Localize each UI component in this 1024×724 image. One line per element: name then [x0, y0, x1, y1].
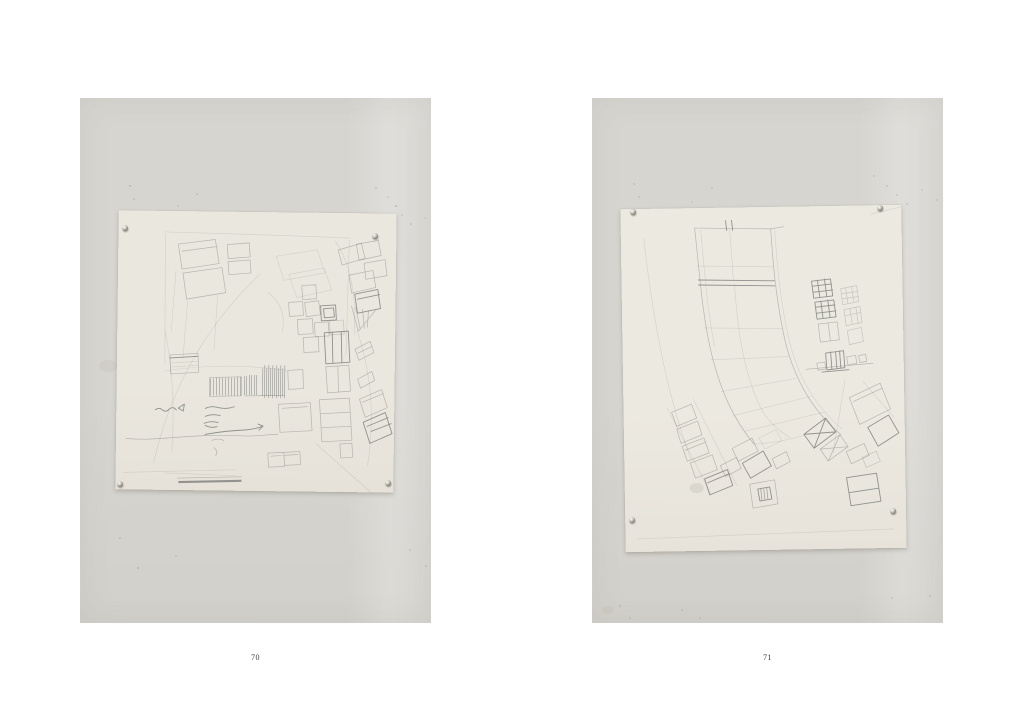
photo-plate-left [80, 98, 431, 623]
pushpin-icon [122, 225, 128, 231]
pushpin-icon [372, 233, 378, 239]
pushpin-icon [890, 508, 896, 514]
pushpin-icon [630, 209, 636, 215]
book-spread: 70 71 [0, 0, 1024, 724]
page-number-left: 70 [80, 653, 431, 662]
pencil-sketch-right [620, 205, 906, 552]
artwork-paper-right [620, 205, 906, 552]
pushpin-icon [877, 205, 883, 211]
pushpin-icon [117, 481, 123, 487]
artwork-paper-left [115, 210, 396, 492]
pencil-sketch-left [115, 210, 396, 492]
pushpin-icon [385, 480, 391, 486]
photo-plate-right [592, 98, 943, 623]
page-number-right: 71 [592, 653, 943, 662]
pushpin-icon [629, 517, 635, 523]
